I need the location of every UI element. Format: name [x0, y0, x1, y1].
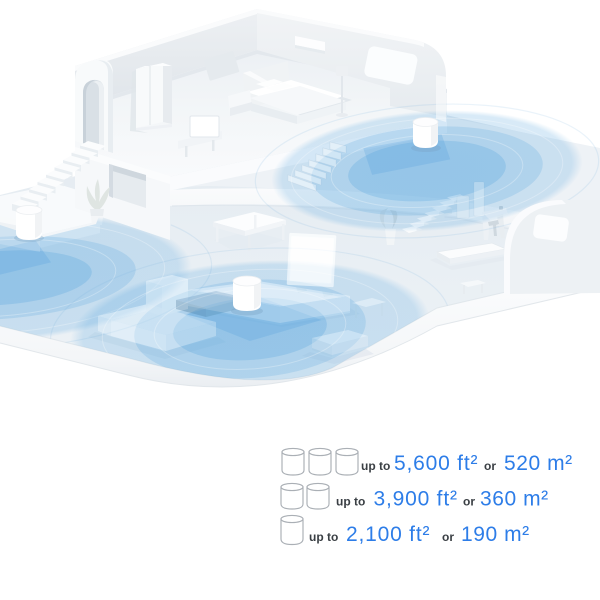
- svg-text:or: or: [463, 495, 475, 509]
- svg-text:3,900 ft²: 3,900 ft²: [374, 488, 458, 511]
- svg-text:up to: up to: [309, 530, 338, 544]
- svg-text:5,600 ft²: 5,600 ft²: [394, 452, 478, 475]
- svg-text:or: or: [484, 459, 496, 473]
- svg-text:190 m²: 190 m²: [461, 523, 530, 546]
- svg-text:360 m²: 360 m²: [480, 488, 549, 511]
- svg-text:520 m²: 520 m²: [504, 452, 573, 475]
- svg-text:or: or: [442, 530, 454, 544]
- svg-text:2,100 ft²: 2,100 ft²: [346, 523, 430, 546]
- svg-text:up to: up to: [361, 459, 390, 473]
- svg-text:up to: up to: [336, 495, 365, 509]
